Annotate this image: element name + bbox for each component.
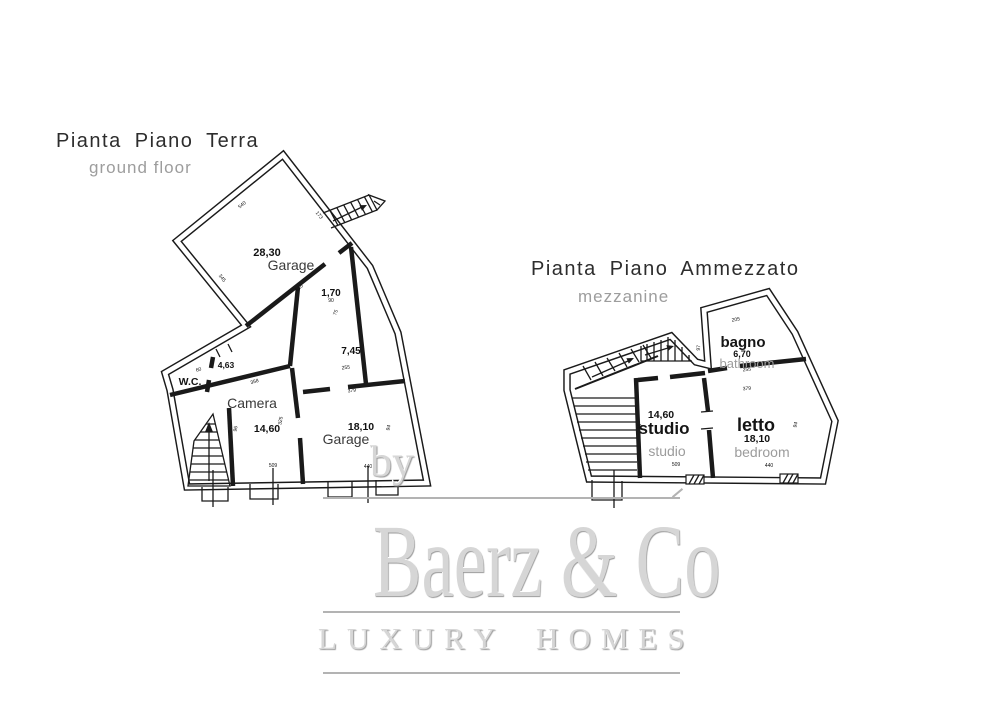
watermark-by: by: [370, 436, 414, 487]
dimension-label: 509: [269, 463, 278, 469]
watermark-tagline: LUXURY HOMES: [318, 621, 684, 657]
dimension-label: 97: [696, 345, 702, 351]
dimension-label: 379: [347, 387, 356, 394]
dimension-label: 96: [233, 425, 240, 432]
watermark-line-top: [323, 497, 680, 499]
mezzanine-outer-wall: [567, 292, 835, 481]
letto-translation: bedroom: [734, 444, 789, 460]
dimension-label: 95: [637, 423, 644, 430]
dimension-label: 325: [277, 416, 284, 425]
anteroom-area: 4,63: [218, 360, 235, 370]
dimension-label: 358: [649, 375, 658, 382]
camera-label: Camera: [227, 395, 277, 411]
watermark-brand: Baerz & Co: [373, 502, 629, 621]
dimension-label: 345: [217, 273, 227, 283]
corridor-area: 7,45: [341, 346, 361, 357]
dimension-label: 509: [672, 462, 681, 468]
wc-label: W.C.: [179, 376, 202, 388]
dimension-label: 60: [195, 366, 202, 373]
studio-label: studio: [639, 419, 690, 438]
dimension-label: 94: [793, 421, 800, 428]
dimension-label: 75: [332, 309, 340, 316]
dimension-label: 358: [250, 378, 260, 386]
dimension-label: 90: [328, 298, 334, 304]
dimension-label: 255: [341, 364, 350, 371]
garage-top-label: Garage: [268, 257, 315, 273]
watermark-line-middle: [323, 611, 680, 613]
dimension-label: 379: [742, 386, 751, 393]
letto-label: letto: [737, 415, 775, 435]
ground-staircase: [188, 414, 230, 486]
studio-translation: studio: [648, 443, 686, 459]
watermark-line-bottom: [323, 672, 680, 674]
dimension-label: 94: [386, 424, 393, 431]
floor-plan-document: Pianta Piano Terra ground floor Pianta P…: [0, 0, 1000, 707]
dimension-label: 205: [731, 316, 740, 323]
mezzanine-plan: bagno 6,70 bathroom 14,60 studio studio …: [567, 292, 835, 508]
dimension-label: 173: [314, 210, 324, 220]
dimension-label: 540: [237, 200, 247, 210]
dimension-label: 255: [742, 367, 751, 374]
garage-right-label: Garage: [323, 431, 370, 447]
dimension-label: 440: [765, 463, 774, 469]
